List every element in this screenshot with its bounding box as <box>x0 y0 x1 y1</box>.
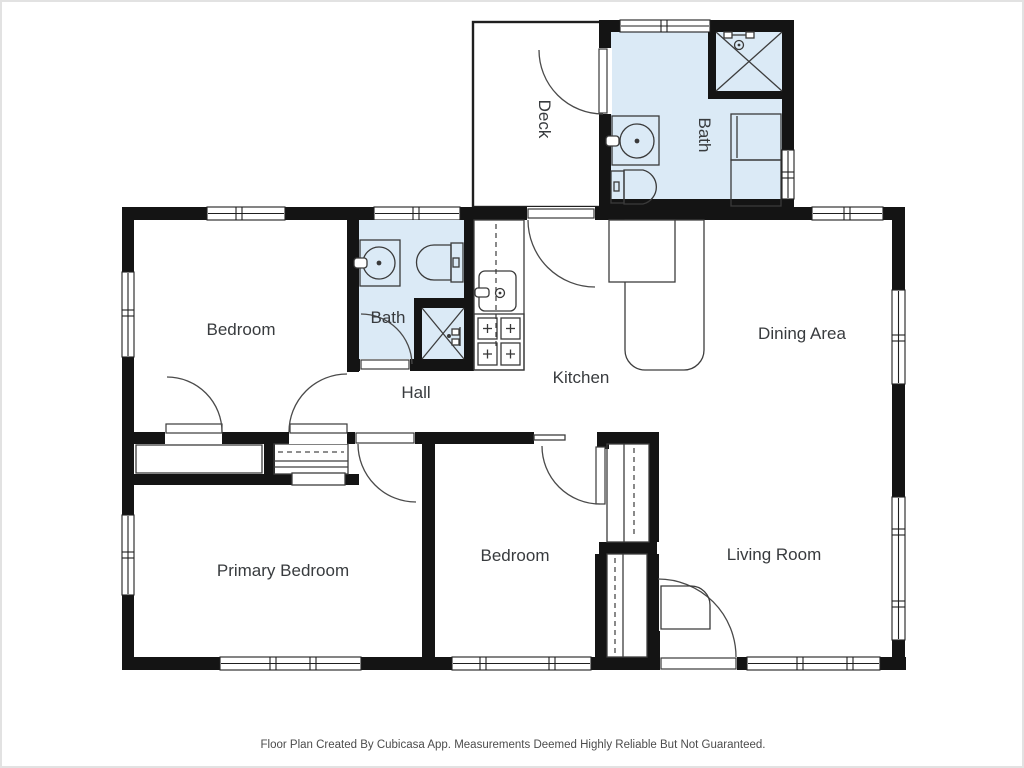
window <box>892 290 905 384</box>
door-entry <box>658 579 737 670</box>
room-label-living-room: Living Room <box>727 545 822 565</box>
room-label-hall: Hall <box>401 383 430 403</box>
room-label-bath: Bath <box>371 308 406 328</box>
room-label-kitchen: Kitchen <box>553 368 610 388</box>
wall-segment <box>464 207 474 371</box>
bath-lower-room <box>347 207 474 372</box>
window <box>122 515 134 595</box>
wall-segment <box>348 359 360 371</box>
room-label-deck: Deck <box>534 100 554 139</box>
window <box>892 497 905 640</box>
room-label-bath-upper: Bath <box>694 118 714 153</box>
floor-plan-page: Deck Bath Bedroom Bath Hall Kitchen Dini… <box>0 0 1024 768</box>
wall-segment <box>599 199 794 220</box>
closet <box>607 444 649 542</box>
refrigerator <box>609 220 675 282</box>
window <box>812 207 883 220</box>
window <box>452 657 591 670</box>
room-label-bedroom-2: Bedroom <box>481 546 550 566</box>
interior-walls <box>122 432 660 657</box>
door-bedroom-2 <box>534 432 605 504</box>
wall-segment <box>782 20 794 150</box>
wall-segment <box>710 20 794 32</box>
room-label-primary-bedroom: Primary Bedroom <box>217 561 349 581</box>
door-primary-bedroom <box>355 432 416 502</box>
kitchen-fixtures <box>474 220 704 370</box>
door-kitchen <box>527 207 595 287</box>
window <box>374 207 460 220</box>
footer-disclaimer: Floor Plan Created By Cubicasa App. Meas… <box>261 739 766 751</box>
window <box>122 272 134 357</box>
wall-segment <box>599 20 620 32</box>
wall-segment <box>347 207 359 372</box>
room-label-bedroom: Bedroom <box>207 320 276 340</box>
door-bedroom-closet-right <box>289 374 347 444</box>
door-bedroom-closet-left <box>165 377 222 444</box>
closet <box>607 554 647 657</box>
room-label-dining-area: Dining Area <box>758 324 846 344</box>
window <box>220 657 361 670</box>
window <box>207 207 285 220</box>
closet <box>136 445 262 473</box>
floor-plan-drawing <box>2 2 1024 768</box>
window <box>620 20 710 32</box>
window <box>747 657 880 670</box>
window <box>782 150 794 199</box>
